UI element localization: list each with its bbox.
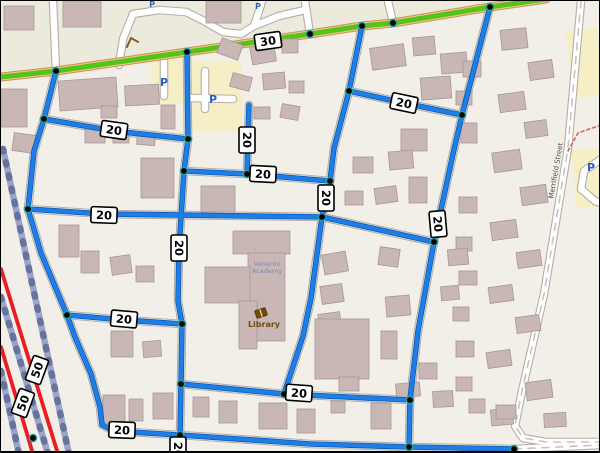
building — [254, 107, 270, 119]
speed-limit-badge[interactable]: 20 — [110, 310, 137, 328]
speed-limit-badge[interactable]: 20 — [170, 437, 186, 453]
route-node[interactable] — [318, 213, 325, 220]
building — [124, 84, 159, 106]
building — [289, 81, 304, 93]
route-node[interactable] — [24, 205, 31, 212]
speed-limit-value: 20 — [291, 386, 308, 401]
building — [401, 129, 427, 151]
building — [374, 186, 398, 205]
building — [233, 231, 290, 254]
building — [161, 105, 175, 129]
speed-limit-badge[interactable]: 20 — [285, 384, 312, 402]
building — [205, 267, 250, 303]
building — [461, 123, 477, 143]
route-node[interactable] — [486, 3, 493, 10]
building — [353, 157, 373, 173]
building — [456, 341, 474, 357]
building — [136, 266, 154, 282]
building — [331, 401, 345, 413]
building — [433, 390, 454, 407]
speed-limit-badge[interactable]: 20 — [91, 207, 118, 224]
route-node[interactable] — [177, 380, 184, 387]
building — [142, 340, 161, 358]
building — [525, 379, 553, 400]
route-node[interactable] — [178, 320, 185, 327]
building — [490, 219, 518, 240]
academy-label: Academy — [252, 267, 282, 275]
building — [486, 349, 512, 368]
speed-limit-value: 20 — [255, 167, 272, 182]
route-node[interactable] — [40, 115, 47, 122]
speed-limit-badge[interactable]: 20 — [171, 235, 187, 261]
building — [370, 44, 407, 71]
speed-limit-badge[interactable]: 30 — [254, 31, 282, 50]
route-node[interactable] — [184, 135, 191, 142]
building — [453, 307, 469, 321]
building — [496, 405, 516, 419]
building — [141, 158, 174, 198]
building — [388, 150, 413, 170]
route-node[interactable] — [180, 167, 187, 174]
library-label: Library — [248, 320, 281, 329]
building — [101, 106, 117, 118]
building — [297, 409, 315, 433]
building — [320, 284, 344, 305]
building — [193, 397, 209, 417]
route-node[interactable] — [306, 30, 313, 37]
building — [1, 89, 27, 127]
speed-limit-value: 20 — [115, 312, 132, 327]
speed-limit-value: 20 — [114, 423, 130, 438]
building — [259, 403, 287, 429]
building — [528, 59, 554, 80]
building — [515, 314, 541, 333]
building — [345, 191, 363, 205]
building — [206, 1, 241, 23]
building — [219, 401, 237, 423]
building — [282, 39, 298, 53]
building — [498, 91, 526, 112]
speed-limit-badge[interactable]: 20 — [239, 127, 255, 153]
building — [500, 28, 528, 51]
route-node[interactable] — [52, 67, 59, 74]
building — [520, 184, 548, 205]
map-canvas[interactable]: 302020202020202020202020205050VeneriniAc… — [1, 1, 600, 453]
building — [488, 284, 514, 303]
route-node[interactable] — [458, 111, 465, 118]
speed-limit-value: 20 — [96, 208, 112, 223]
building — [129, 399, 143, 421]
building — [280, 104, 300, 121]
parking-icon: P — [160, 76, 168, 89]
speed-limit-value: 20 — [430, 215, 445, 232]
building — [315, 319, 369, 379]
speed-limit-badge[interactable]: 20 — [250, 165, 277, 182]
parking-icon: P — [587, 161, 595, 174]
building — [459, 271, 477, 285]
building — [524, 120, 548, 139]
building — [339, 377, 359, 391]
building — [544, 412, 567, 427]
building — [469, 399, 485, 413]
route-node[interactable] — [29, 434, 36, 441]
building — [262, 72, 285, 90]
speed-limit-value: 20 — [319, 190, 333, 206]
building — [153, 393, 173, 419]
speed-limit-value: 20 — [105, 122, 123, 138]
building — [110, 255, 132, 276]
street — [53, 1, 56, 71]
speed-limit-value: 20 — [240, 132, 254, 148]
route-node[interactable] — [345, 87, 352, 94]
building — [201, 186, 235, 212]
building — [516, 249, 542, 268]
building — [440, 285, 459, 301]
building — [385, 295, 411, 317]
building — [4, 6, 34, 30]
route-node[interactable] — [63, 311, 70, 318]
building — [492, 149, 523, 173]
building — [456, 377, 472, 391]
building — [63, 1, 101, 27]
building — [81, 251, 99, 273]
route-node[interactable] — [358, 22, 365, 29]
parking-icon: P — [209, 93, 217, 106]
building — [59, 225, 79, 257]
route-node[interactable] — [389, 19, 396, 26]
speed-limit-value: 20 — [172, 240, 186, 256]
route-node[interactable] — [406, 396, 413, 403]
building — [111, 331, 133, 357]
building — [381, 331, 397, 359]
building — [378, 247, 400, 268]
speed-limit-value: 30 — [259, 33, 277, 49]
speed-limit-badge[interactable]: 20 — [318, 185, 334, 211]
speed-limit-badge[interactable]: 20 — [109, 422, 136, 439]
speed-limit-badge[interactable]: 20 — [100, 120, 128, 139]
building — [321, 251, 348, 275]
parking-icon: P — [255, 2, 261, 11]
building — [459, 197, 477, 213]
route-node[interactable] — [430, 238, 437, 245]
route-node[interactable] — [183, 48, 190, 55]
parking-icon: P — [149, 1, 155, 9]
building — [420, 76, 451, 100]
building — [419, 363, 437, 379]
building — [409, 177, 427, 203]
building — [371, 403, 391, 429]
route-node[interactable] — [326, 177, 333, 184]
speed-limit-badge[interactable]: 20 — [429, 210, 447, 237]
building — [103, 395, 125, 423]
route-node[interactable] — [405, 443, 412, 450]
map-view[interactable]: 302020202020202020202020205050VeneriniAc… — [0, 0, 600, 453]
building — [447, 248, 468, 266]
building — [412, 36, 435, 56]
